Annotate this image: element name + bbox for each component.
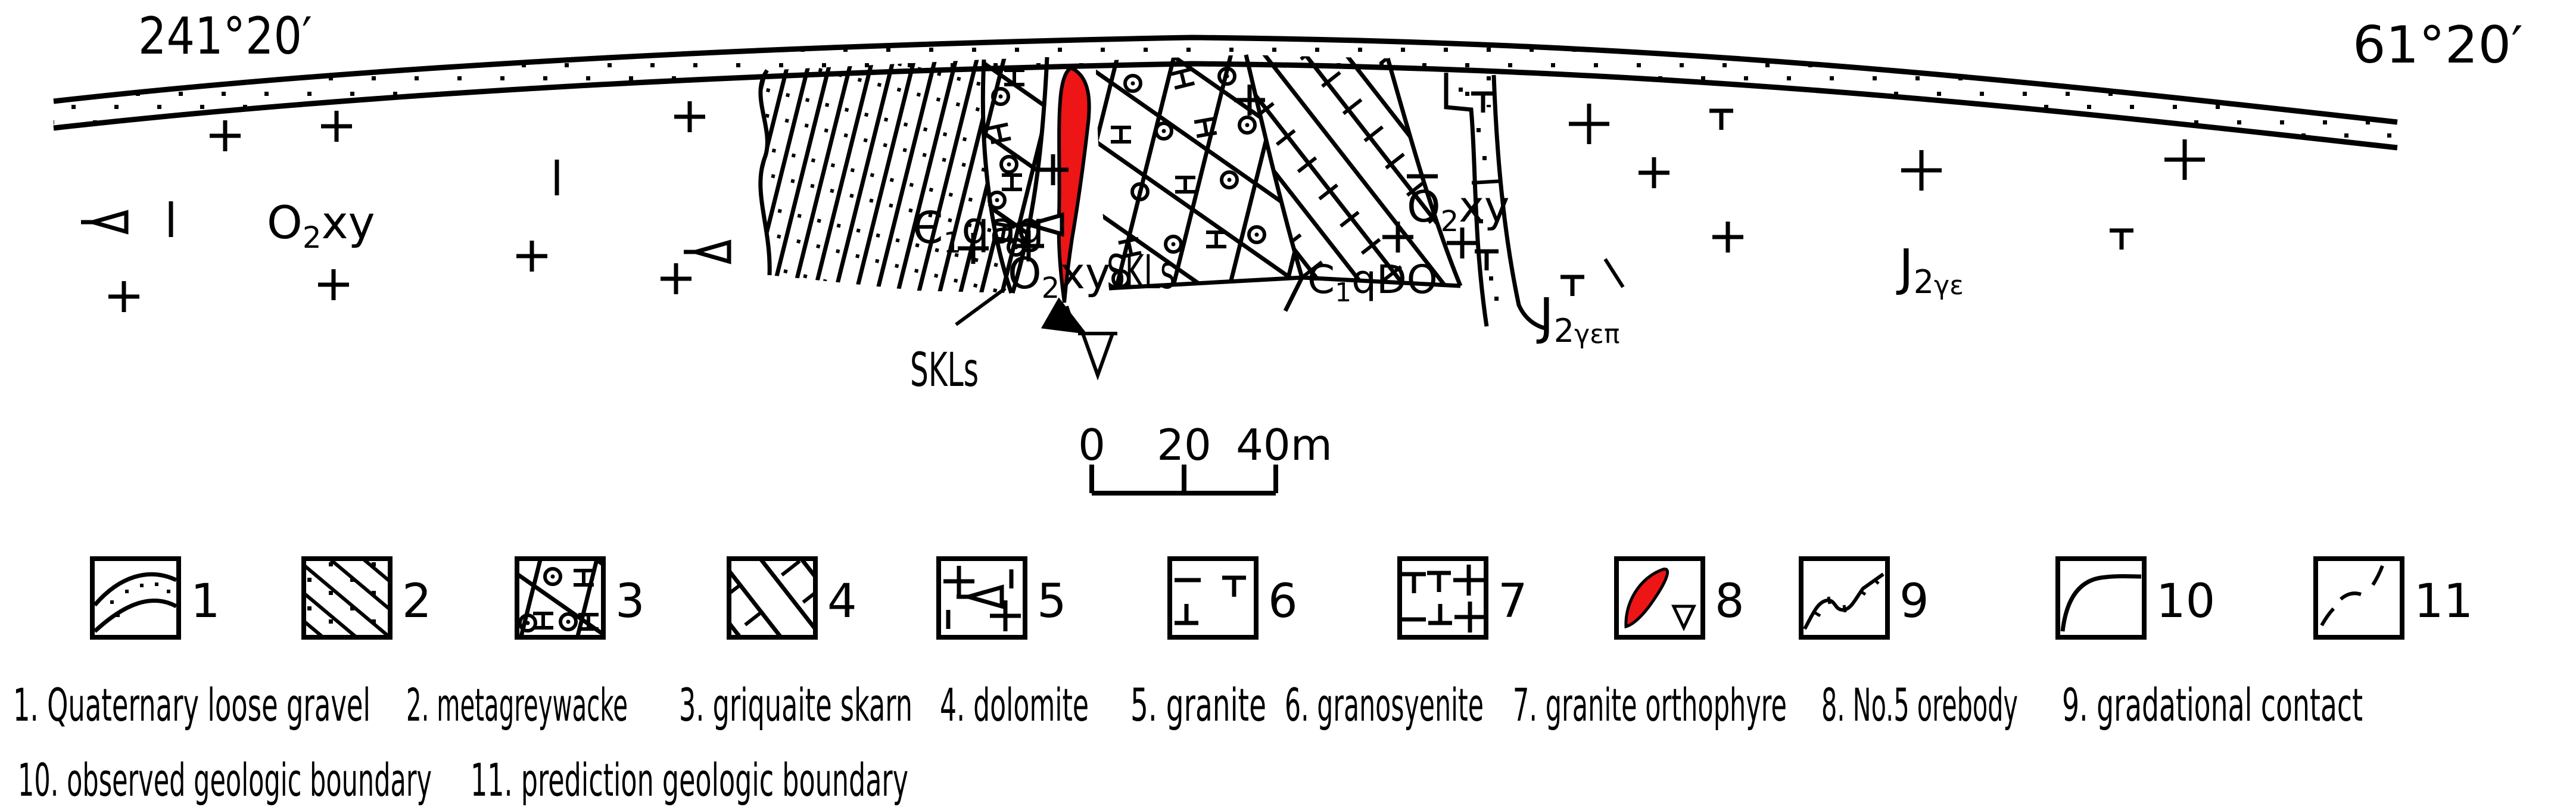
granite-plus-icon [1901, 150, 1942, 191]
legend-number-3: 3 [615, 575, 645, 628]
legend-number-5: 5 [1037, 575, 1067, 628]
legend-caption-5: 5. granite [1130, 678, 1266, 731]
orebody-plunge-marker [1078, 334, 1117, 375]
legend-caption-3: 3. griquaite skarn [679, 678, 912, 731]
scale-bar: 0 20 40m [1078, 420, 1332, 493]
granosyenite-t-icon [1560, 277, 1584, 296]
legend-number-6: 6 [1268, 575, 1298, 628]
legend-number-9: 9 [1899, 575, 1929, 628]
legend-caption-6: 6. granosyenite [1285, 678, 1484, 731]
legend: 1 2 3 4 [92, 559, 2473, 637]
granite-plus-icon [318, 269, 349, 300]
dike-lower-tick [1605, 259, 1623, 287]
scale-label-40m: 40m [1236, 420, 1332, 470]
granite-plus-icon [1712, 222, 1743, 253]
scale-label-20: 20 [1157, 420, 1211, 470]
legend-number-4: 4 [827, 575, 857, 628]
legend-box-prediction-boundary: 11 [2316, 559, 2473, 637]
granite-triangle-icon [684, 242, 729, 261]
label-e1qdo: Є1qDO [1307, 257, 1438, 308]
label-j2-gamma-epsilon-pi: J2γεπ [1536, 287, 1619, 350]
legend-caption-10: 10. observed geologic boundary [18, 753, 432, 806]
granite-plus-icon [108, 281, 139, 312]
legend-box-gravel: 1 [92, 559, 220, 637]
legend-number-2: 2 [402, 575, 432, 628]
svg-text:O2xy: O2xy [1407, 182, 1509, 238]
legend-number-10: 10 [2156, 575, 2215, 628]
label-j2-gamma-epsilon: J2γε [1896, 238, 1964, 301]
granite-plus-icon [1639, 157, 1669, 188]
label-skls-center: SKLs [1107, 246, 1175, 300]
legend-box-granite-orthophyre: 7 [1400, 559, 1528, 637]
granite-plus-icon [2164, 139, 2205, 180]
legend-box-granosyenite: 6 [1170, 559, 1298, 637]
legend-orebody-lens [1626, 569, 1668, 627]
granite-plus-icon [1569, 104, 1609, 144]
legend-caption-4: 4. dolomite [940, 678, 1089, 731]
label-o2xy-overbar: O2xy [1407, 176, 1509, 238]
granite-plus-icon [516, 241, 547, 272]
legend-caption-8: 8. No.5 orebody [1821, 678, 2018, 731]
legend-number-7: 7 [1498, 575, 1528, 628]
label-o2xy-left: O2xy [267, 196, 375, 255]
granite-plus-icon [661, 263, 691, 294]
legend-caption-11: 11. prediction geologic boundary [471, 753, 908, 806]
granite-plus-icon [674, 101, 705, 132]
granite-plus-icon [321, 111, 352, 142]
granite-plus-icon [210, 120, 241, 151]
granosyenite-t-icon [1709, 111, 1733, 130]
legend-captions: 1. Quaternary loose gravel 2. metagreywa… [13, 678, 2363, 806]
geological-cross-section-figure: 241°20′ 61°20′ [0, 0, 2576, 810]
legend-caption-2: 2. metagreywacke [406, 678, 628, 731]
legend-box-dolomite: 4 [729, 559, 857, 637]
legend-number-8: 8 [1715, 575, 1745, 628]
legend-box-observed-boundary: 10 [2058, 559, 2215, 637]
scale-label-0: 0 [1078, 420, 1105, 470]
orebody-arrow [1067, 306, 1084, 332]
legend-caption-9: 9. gradational contact [2062, 678, 2363, 731]
legend-caption-1: 1. Quaternary loose gravel [13, 678, 370, 731]
legend-box-orebody: 8 [1616, 559, 1745, 637]
granite-triangle-icon [81, 213, 126, 232]
granosyenite-t-icon [2110, 230, 2133, 250]
label-skls-left: SKLs [910, 344, 979, 397]
legend-box-gradational-contact: 9 [1801, 559, 1929, 637]
legend-box-metagreywacke: 2 [304, 559, 432, 637]
legend-caption-7: 7. granite orthophyre [1513, 678, 1787, 731]
skls-left-leader-line [956, 288, 1005, 325]
legend-number-11: 11 [2414, 575, 2473, 628]
legend-box-granite: 5 [939, 559, 1067, 637]
legend-box-griquaite-skarn: 3 [517, 559, 645, 637]
bearing-left-label: 241°20′ [138, 7, 312, 66]
legend-number-1: 1 [191, 575, 220, 628]
bearing-right-label: 61°20′ [2353, 15, 2523, 75]
